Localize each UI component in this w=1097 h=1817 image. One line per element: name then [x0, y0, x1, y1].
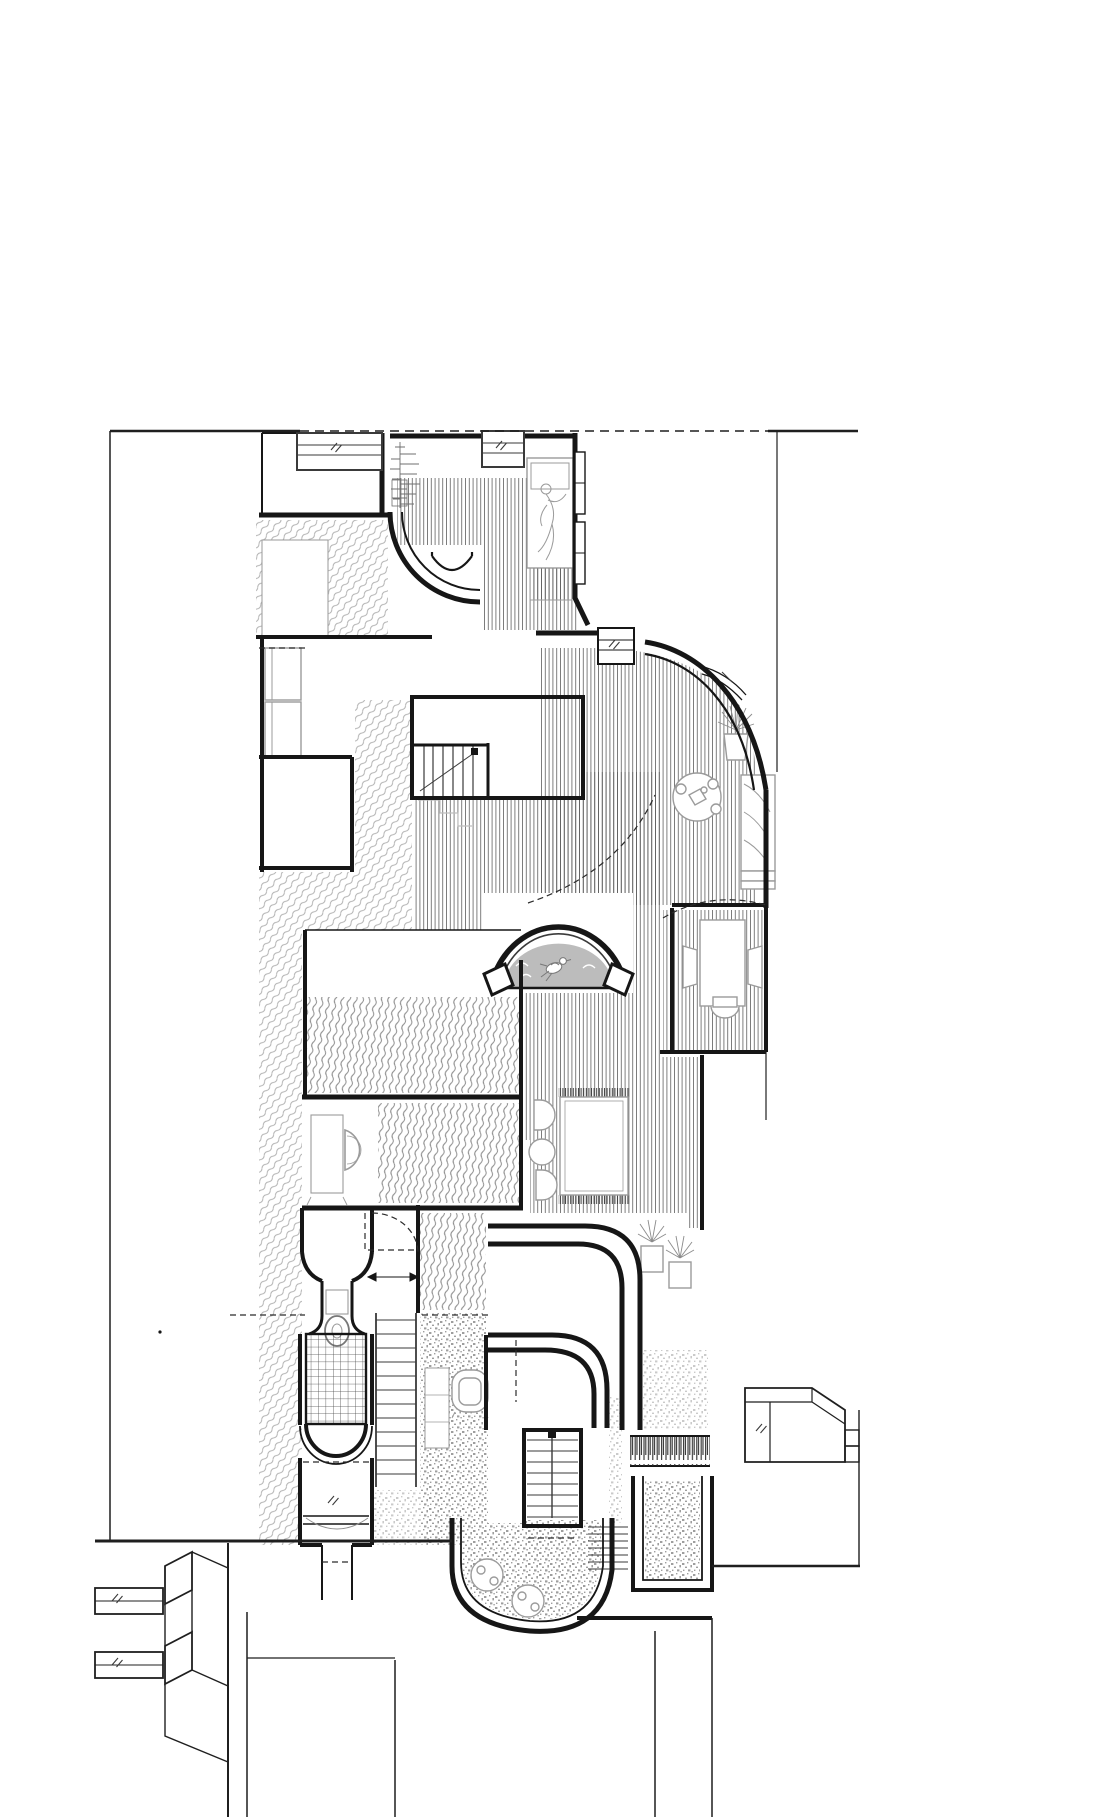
terrace-hatch-c	[420, 1213, 486, 1310]
terrace-hatch-b	[378, 1103, 521, 1203]
bed-with-figure	[527, 458, 573, 600]
shower-tiles	[306, 1334, 366, 1424]
floor-plan-sheet	[0, 0, 1097, 1817]
hatch-notch	[262, 540, 328, 638]
court-stipple-light	[374, 1490, 420, 1545]
window-seat-sofa	[265, 648, 301, 758]
stipple-right	[643, 1350, 708, 1430]
round-tea-table	[673, 773, 721, 821]
balustrade-fence	[630, 1437, 710, 1466]
kitchen-whiteout	[486, 1213, 688, 1350]
party-hatch-band	[259, 930, 302, 1545]
bay-sofa	[741, 775, 775, 889]
terrace-hatch-a	[305, 997, 521, 1093]
fringed-rug	[558, 1088, 630, 1204]
corridor-whiteout	[488, 1337, 526, 1523]
planter-stipple	[645, 1480, 700, 1580]
survey-dot	[158, 1330, 161, 1333]
